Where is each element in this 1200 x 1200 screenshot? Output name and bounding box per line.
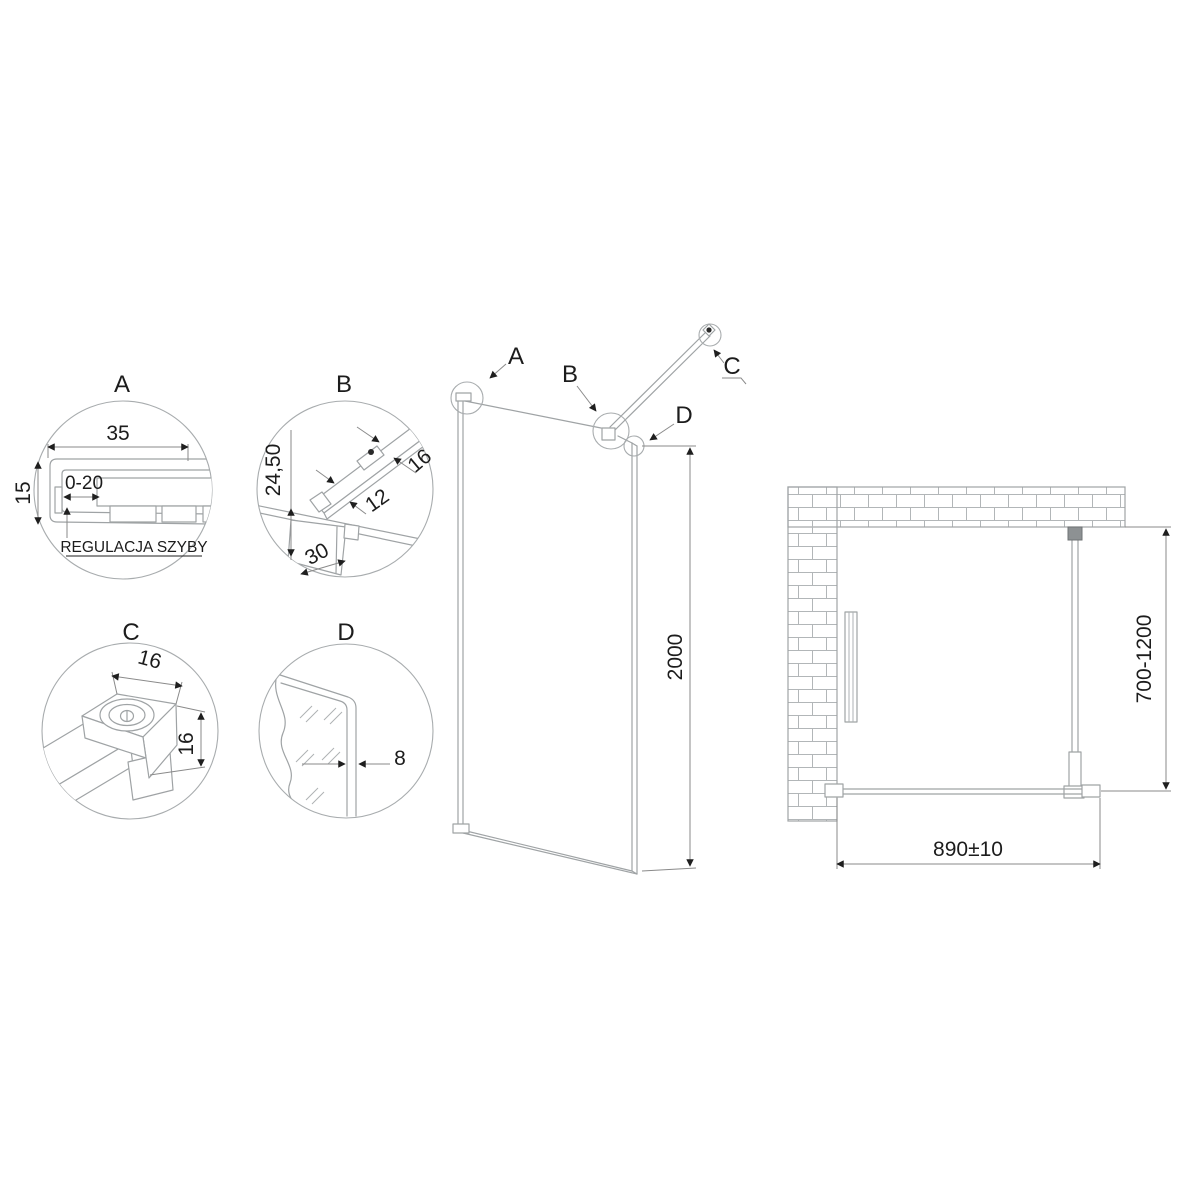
glass-serration-1 — [110, 506, 156, 522]
dim-b-offset: 24,50 — [262, 444, 285, 497]
dim-a-adjustment: 0-20 — [65, 473, 103, 494]
dim-panel-height: 2000 — [664, 634, 687, 681]
dim-d-thickness: 8 — [394, 747, 406, 770]
plan-arm-wall-mount — [1068, 527, 1082, 540]
side-wall-bricks — [788, 487, 837, 821]
detail-d-label: D — [337, 619, 354, 646]
glass-serration-2 — [162, 506, 196, 522]
dim-plan-width: 890±10 — [933, 838, 1003, 861]
callout-a-label: A — [508, 343, 524, 370]
shower-column — [845, 612, 857, 722]
dim-c-height: 16 — [175, 732, 198, 755]
detail-a-label: A — [114, 371, 130, 398]
background — [0, 0, 1200, 1200]
glass-stop — [55, 487, 62, 513]
glass-slab — [97, 478, 222, 506]
plan-arm-glass-bracket — [1064, 786, 1084, 798]
arm-glass-bracket — [602, 428, 615, 440]
back-wall-bricks — [788, 487, 1125, 527]
shower-panel-drawing: A 35 15 0-20 REGULACJA SZYBY B — [0, 0, 1200, 1200]
wall-profile-bottom-cap — [453, 824, 469, 833]
glass-clamp-notch — [344, 524, 359, 540]
callout-c-label: C — [723, 353, 740, 380]
dim-a-height: 15 — [12, 481, 35, 504]
glass-adjustment-note: REGULACJA SZYBY — [60, 539, 207, 556]
arm-bracket-screw — [368, 449, 374, 455]
dim-plan-arm-range: 700-1200 — [1133, 615, 1156, 704]
wall-profile-top-cap — [456, 393, 471, 401]
technical-drawing-page: A 35 15 0-20 REGULACJA SZYBY B — [0, 0, 1200, 1200]
dim-a-width: 35 — [106, 422, 129, 445]
arm-wall-mount-screw — [706, 327, 711, 332]
detail-b-label: B — [336, 371, 352, 398]
callout-b-label: B — [562, 361, 578, 388]
detail-c-label: C — [122, 619, 139, 646]
plan-glass-end-cap — [1082, 785, 1100, 797]
plan-arm-outer-tube — [1069, 752, 1081, 788]
callout-d-label: D — [675, 402, 692, 429]
plan-wall-profile — [825, 784, 843, 797]
